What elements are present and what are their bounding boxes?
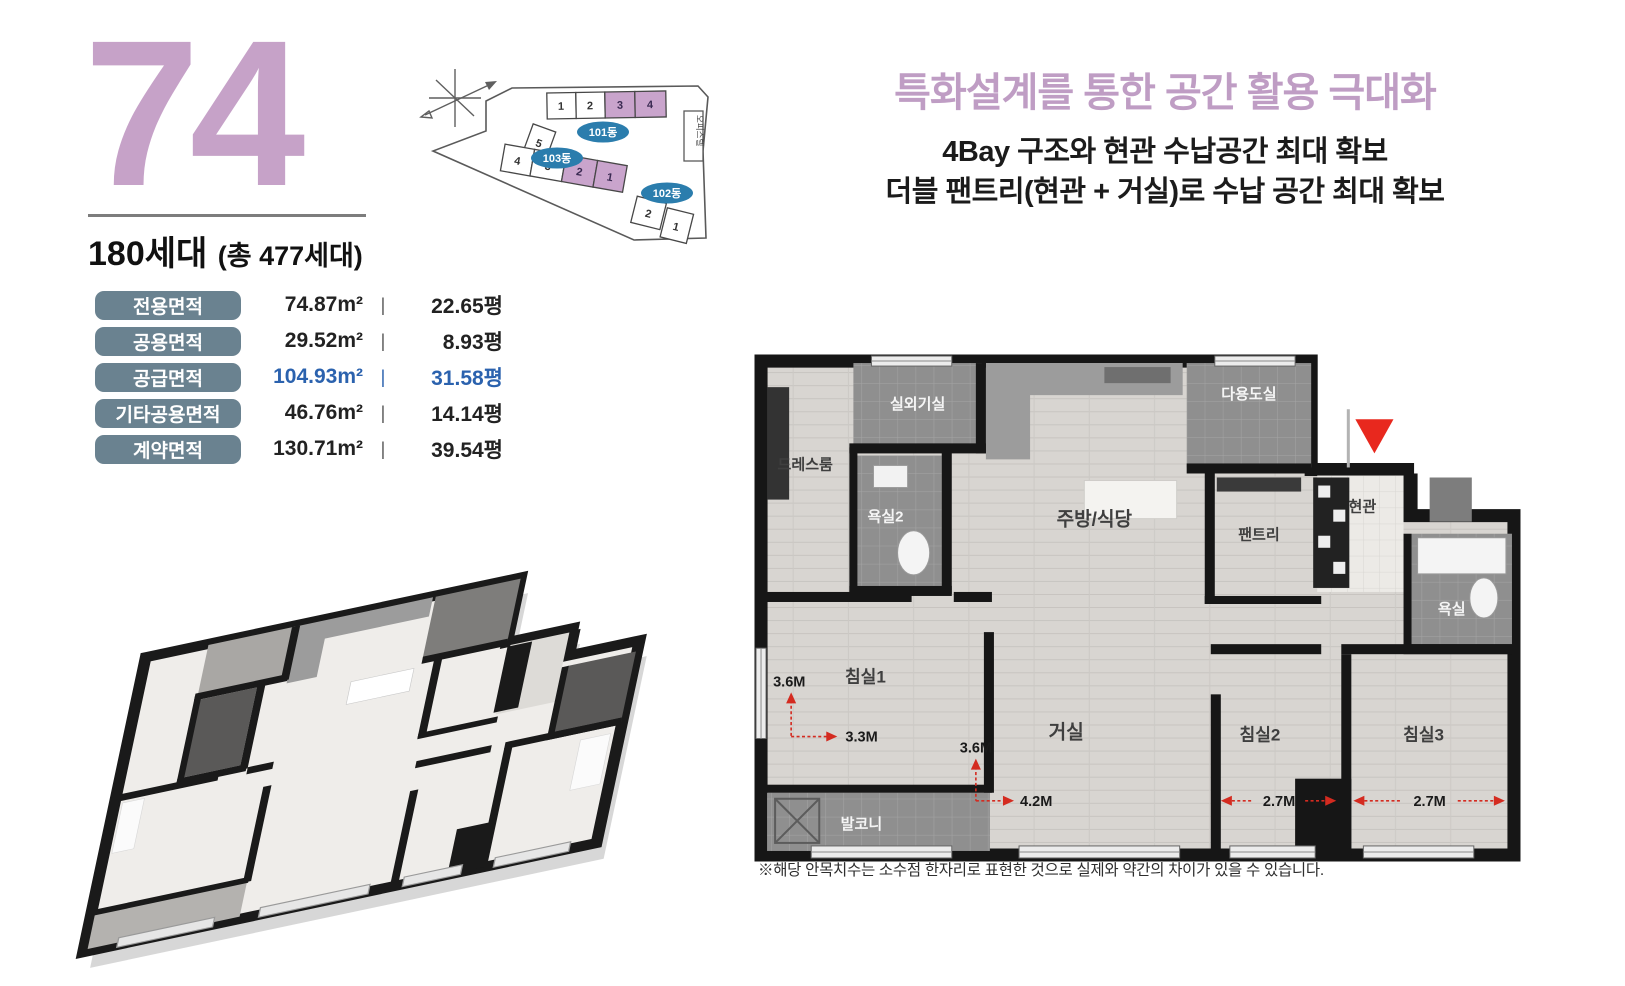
row-pyeong-value: 31.58평 — [403, 362, 503, 392]
kitchen-sink — [1104, 367, 1170, 383]
divider-line — [88, 214, 366, 217]
label-living: 거실 — [1049, 722, 1084, 744]
households-line: 180세대 (총 477세대) — [88, 226, 363, 275]
building-101: 1 2 3 4 — [547, 91, 666, 119]
row-divider: | — [363, 295, 403, 316]
table-row: 전용면적 74.87m² | 22.65평 — [95, 290, 503, 320]
annex-officetel: 오피스텔 — [684, 111, 705, 161]
label-utility: 다용도실 — [1221, 386, 1276, 403]
bath2-toilet — [898, 531, 930, 575]
row-sqm-value: 130.71m² — [241, 437, 363, 461]
table-row: 계약면적 130.71m² | 39.54평 — [95, 434, 503, 464]
entry-storage — [1430, 478, 1472, 522]
table-row-highlight: 공급면적 104.93m² | 31.58평 — [95, 362, 503, 392]
building-102-label: 102동 — [653, 187, 681, 200]
row-label-pill: 전용면적 — [95, 291, 241, 320]
unit-type-number: 74 — [84, 16, 295, 214]
headline-block: 특화설계를 통한 공간 활용 극대화 4Bay 구조와 현관 수납공간 최대 확… — [845, 60, 1485, 212]
row-label-pill: 기타공용면적 — [95, 399, 241, 428]
label-bed1: 침실1 — [845, 666, 886, 686]
dim-bed1-width: 3.3M — [845, 730, 877, 746]
entry-marker-triangle — [1355, 419, 1393, 453]
row-pyeong-value: 14.14평 — [403, 398, 503, 428]
row-divider: | — [363, 439, 403, 460]
row-sqm-value: 46.76m² — [241, 401, 363, 425]
footnote: ※해당 안목치수는 소수점 한자리로 표현한 것으로 실제와 약간의 차이가 있… — [758, 858, 1324, 880]
floor-plan-3d — [70, 528, 670, 973]
row-pyeong-value: 39.54평 — [403, 434, 503, 464]
row-sqm-value: 104.93m² — [241, 365, 363, 389]
row-divider: | — [363, 403, 403, 424]
label-balcony: 발코니 — [841, 816, 883, 833]
label-bed3: 침실3 — [1403, 725, 1444, 745]
label-pantry: 팬트리 — [1238, 527, 1280, 544]
row-sqm-value: 74.87m² — [241, 293, 363, 317]
building-101-label: 101동 — [589, 126, 617, 139]
pantry-shelf — [1217, 478, 1301, 492]
row-label-pill: 계약면적 — [95, 435, 241, 464]
unit-number: 2 — [587, 100, 593, 112]
bath-tub — [1418, 538, 1506, 574]
row-label-pill: 공용면적 — [95, 327, 241, 356]
row-pyeong-value: 8.93평 — [403, 326, 503, 356]
dim-bed3-width: 2.7M — [1413, 794, 1445, 810]
dim-living-width: 4.2M — [1020, 794, 1052, 810]
label-bath: 욕실 — [1438, 601, 1466, 618]
entry-closet — [1313, 478, 1349, 588]
brochure-page: 74 180세대 (총 477세대) 전용면적 74.87m² | 22.65평… — [0, 0, 1625, 986]
bath-toilet — [1470, 578, 1498, 618]
row-divider: | — [363, 367, 403, 388]
room-utility — [1187, 363, 1311, 467]
table-row: 기타공용면적 46.76m² | 14.14평 — [95, 398, 503, 428]
headline-subtitle-2: 더블 팬트리(현관 + 거실)로 수납 공간 최대 확보 — [845, 172, 1485, 212]
unit-number: 1 — [558, 101, 564, 113]
label-entry: 현관 — [1349, 499, 1377, 516]
label-bath2: 욕실2 — [867, 509, 903, 526]
row-pyeong-value: 22.65평 — [403, 290, 503, 320]
headline-subtitle-1: 4Bay 구조와 현관 수납공간 최대 확보 — [845, 132, 1485, 172]
row-sqm-value: 29.52m² — [241, 329, 363, 353]
dressroom-wardrobe — [767, 387, 789, 499]
table-row: 공용면적 29.52m² | 8.93평 — [95, 326, 503, 356]
annex-label: 오피스텔 — [695, 115, 705, 146]
label-kitchen: 주방/식당 — [1057, 509, 1133, 531]
building-103-label: 103동 — [543, 152, 571, 165]
dim-living-height: 3.6M — [960, 741, 992, 757]
area-table: 전용면적 74.87m² | 22.65평 공용면적 29.52m² | 8.9… — [95, 290, 503, 464]
label-outdoor-unit: 실외기실 — [890, 395, 945, 413]
bath2-sink — [873, 465, 907, 487]
households-total: (총 477세대) — [218, 241, 363, 271]
row-divider: | — [363, 331, 403, 352]
row-label-pill: 공급면적 — [95, 363, 241, 392]
site-map: 오피스텔 1 2 3 4 101동 5 4 3 2 1 — [405, 55, 720, 250]
unit-number-highlight: 4 — [647, 99, 654, 111]
unit-number-highlight: 3 — [617, 100, 623, 112]
headline-title: 특화설계를 통한 공간 활용 극대화 — [845, 60, 1485, 118]
households-count: 180세대 — [88, 235, 207, 273]
dim-bed2-width: 2.7M — [1263, 794, 1295, 810]
iso-outer-wall — [83, 548, 659, 952]
label-dress-room: 드레스룸 — [778, 456, 834, 473]
label-bed2: 침실2 — [1240, 725, 1281, 745]
floor-plan-2d: 실외기실 드레스룸 욕실2 주방/식당 다용도실 팬트리 현관 욕실 침실1 거… — [753, 346, 1523, 864]
dim-bed1-height: 3.6M — [773, 674, 805, 690]
